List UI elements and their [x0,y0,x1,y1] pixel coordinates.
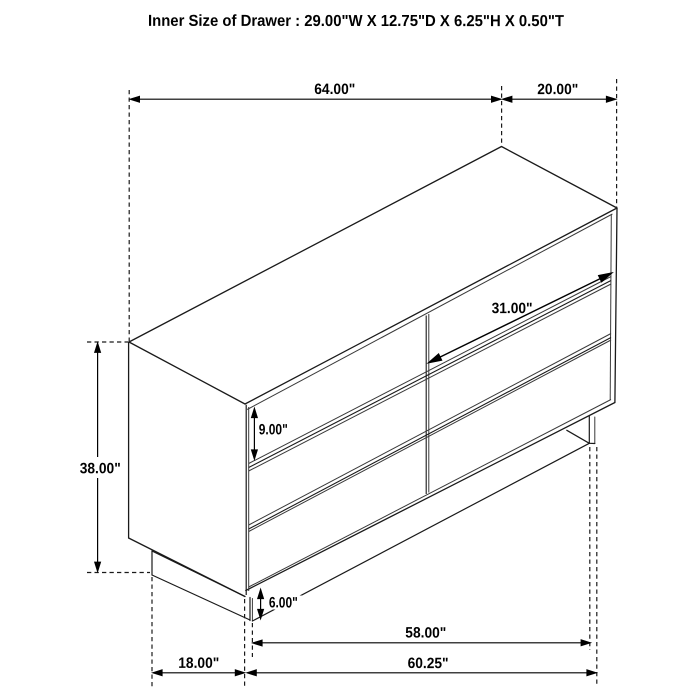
svg-text:64.00": 64.00" [314,81,355,98]
svg-text:20.00": 20.00" [537,81,578,98]
svg-text:9.00": 9.00" [259,421,288,438]
svg-text:58.00": 58.00" [405,625,446,642]
svg-text:Inner Size of Drawer : 29.00"W: Inner Size of Drawer : 29.00"W X 12.75"D… [148,13,564,30]
svg-text:60.25": 60.25" [408,655,449,672]
svg-text:6.00": 6.00" [269,594,298,611]
svg-text:18.00": 18.00" [178,655,219,672]
svg-text:31.00": 31.00" [492,300,533,317]
svg-text:38.00": 38.00" [80,460,121,477]
